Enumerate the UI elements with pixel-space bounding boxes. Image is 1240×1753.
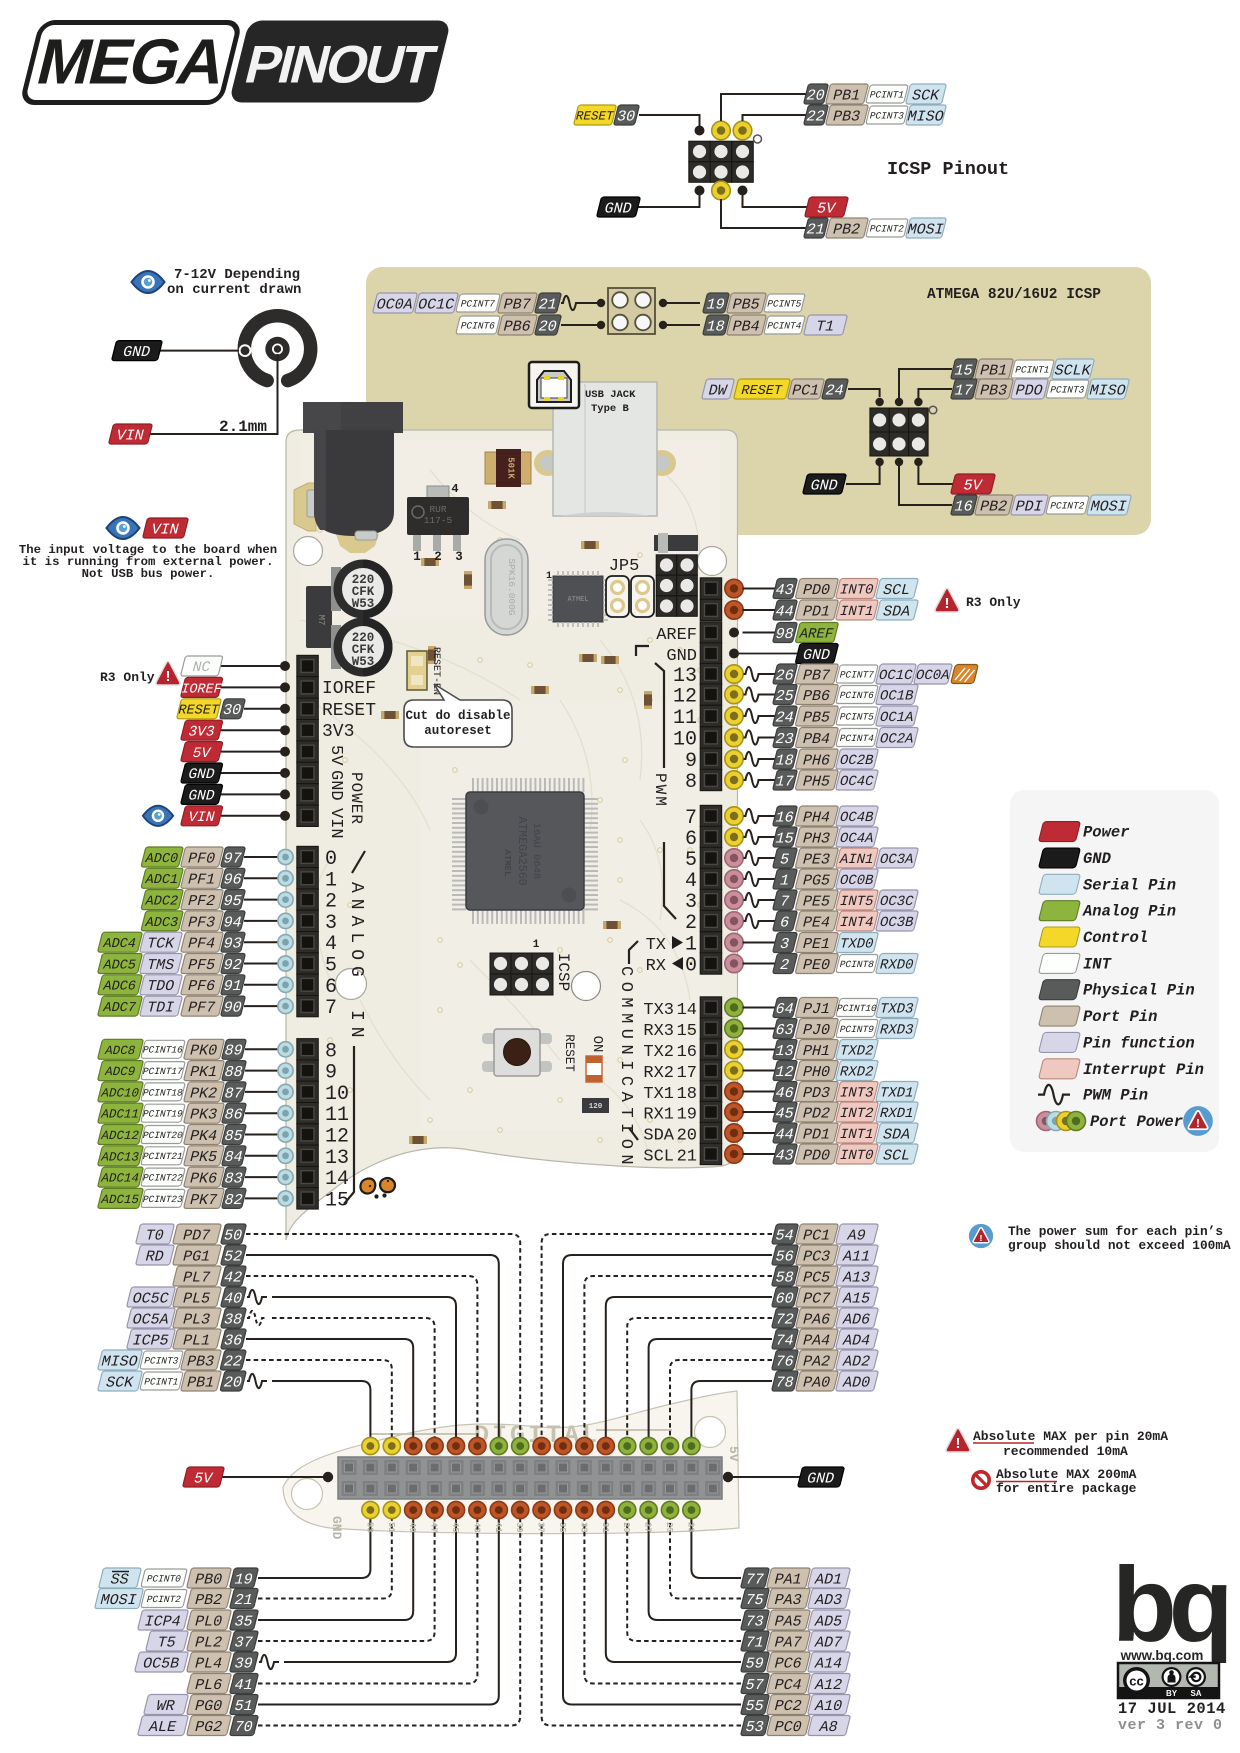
svg-text:PL4: PL4: [193, 1655, 224, 1673]
svg-text:37: 37: [536, 1522, 546, 1533]
svg-text:RXD1: RXD1: [878, 1106, 916, 1122]
svg-text:PL6: PL6: [193, 1676, 224, 1694]
svg-text:PA0: PA0: [801, 1374, 832, 1392]
svg-text:GND: GND: [1083, 850, 1112, 868]
svg-text:PCINT22: PCINT22: [142, 1173, 185, 1184]
svg-text:MISO: MISO: [905, 108, 945, 126]
svg-text:PK1: PK1: [188, 1063, 219, 1081]
svg-text:www.bq.com: www.bq.com: [1120, 1648, 1204, 1663]
svg-text:SCK: SCK: [104, 1374, 136, 1392]
svg-text:29: 29: [621, 1522, 631, 1533]
svg-text:Physical Pin: Physical Pin: [1083, 982, 1195, 1000]
svg-text:20: 20: [677, 1127, 697, 1146]
svg-text:RXD0: RXD0: [878, 958, 916, 974]
svg-text:PG1: PG1: [181, 1248, 212, 1266]
svg-text:49: 49: [407, 1522, 417, 1533]
svg-text:AREF: AREF: [798, 627, 836, 643]
svg-text:PF3: PF3: [186, 913, 217, 931]
svg-text:PF5: PF5: [186, 956, 217, 974]
svg-text:W53: W53: [352, 597, 375, 611]
svg-text:PA2: PA2: [801, 1353, 832, 1371]
svg-text:OC0B: OC0B: [838, 873, 876, 889]
svg-text:A14: A14: [813, 1655, 844, 1673]
svg-text:PG0: PG0: [193, 1697, 224, 1715]
svg-text:PK4: PK4: [188, 1127, 219, 1145]
svg-text:PF6: PF6: [186, 977, 217, 995]
svg-text:PCINT2: PCINT2: [1049, 501, 1086, 512]
svg-text:PC3: PC3: [801, 1248, 832, 1266]
svg-text:PCINT1: PCINT1: [868, 90, 905, 101]
svg-text:ANALOG: ANALOG: [346, 882, 366, 983]
svg-text:0: 0: [325, 848, 337, 871]
svg-text:14: 14: [677, 1001, 697, 1020]
svg-text:Absolute MAX 200mA: Absolute MAX 200mA: [996, 1467, 1137, 1482]
svg-text:PB2: PB2: [193, 1591, 224, 1609]
svg-text:PD7: PD7: [181, 1227, 212, 1245]
svg-text:OC2B: OC2B: [838, 753, 876, 769]
svg-text:TDO: TDO: [145, 977, 176, 995]
svg-text:INT1: INT1: [838, 1127, 876, 1143]
svg-text:COMMUNICATION: COMMUNICATION: [616, 966, 635, 1170]
svg-text:PCINT7: PCINT7: [838, 670, 875, 681]
svg-text:ADC9: ADC9: [103, 1064, 137, 1079]
svg-text:OC0A: OC0A: [914, 668, 952, 684]
svg-text:PC0: PC0: [772, 1718, 803, 1736]
svg-text:PCINT5: PCINT5: [766, 299, 803, 310]
svg-text:Serial Pin: Serial Pin: [1083, 876, 1176, 894]
svg-text:AD1: AD1: [813, 1571, 844, 1589]
svg-text:PCINT2: PCINT2: [145, 1594, 182, 1605]
svg-text:ON: ON: [589, 1036, 605, 1053]
svg-text:GND: GND: [666, 647, 697, 666]
svg-text:VIN: VIN: [326, 808, 345, 839]
svg-text:A12: A12: [813, 1676, 844, 1694]
svg-text:PCINT4: PCINT4: [838, 733, 875, 744]
svg-text:ADC4: ADC4: [101, 937, 137, 952]
svg-text:OC1C: OC1C: [877, 668, 915, 684]
svg-text:PF0: PF0: [186, 850, 217, 868]
svg-text:Type B: Type B: [591, 403, 630, 415]
svg-text:MISO: MISO: [99, 1353, 139, 1371]
svg-text:AIN1: AIN1: [838, 852, 876, 868]
svg-text:AD2: AD2: [841, 1353, 872, 1371]
svg-text:12: 12: [673, 686, 697, 709]
svg-text:PA4: PA4: [801, 1332, 832, 1350]
svg-text:ADC10: ADC10: [100, 1086, 141, 1101]
svg-text:31: 31: [600, 1522, 610, 1533]
svg-text:OC5C: OC5C: [130, 1290, 170, 1308]
svg-text:16: 16: [677, 1043, 697, 1062]
svg-text:PCINT3: PCINT3: [143, 1356, 180, 1367]
svg-text:3V3: 3V3: [186, 725, 216, 741]
svg-text:PB1: PB1: [831, 87, 862, 105]
svg-text:TCK: TCK: [145, 935, 177, 953]
svg-text:PB4: PB4: [801, 730, 832, 748]
svg-text:R3 Only: R3 Only: [966, 595, 1021, 610]
svg-text:ADC13: ADC13: [100, 1149, 141, 1164]
svg-text:PE3: PE3: [801, 851, 832, 869]
svg-text:RUR: RUR: [429, 504, 446, 515]
svg-text:ADC3: ADC3: [144, 916, 180, 931]
svg-text:A13: A13: [841, 1269, 872, 1287]
svg-text:PCINT1: PCINT1: [143, 1377, 180, 1388]
svg-text:ATMEL: ATMEL: [502, 849, 512, 876]
svg-text:PE4: PE4: [801, 914, 832, 932]
svg-text:USB JACK: USB JACK: [585, 389, 636, 401]
svg-text:ICSP: ICSP: [554, 953, 572, 991]
svg-text:ver 3 rev 0: ver 3 rev 0: [1118, 1717, 1223, 1734]
svg-text:IOREF: IOREF: [179, 682, 223, 697]
svg-text:39: 39: [514, 1522, 524, 1533]
svg-text:group should not exceed 100mA: group should not exceed 100mA: [1008, 1238, 1231, 1253]
svg-text:PF2: PF2: [186, 892, 217, 910]
svg-text:TMS: TMS: [145, 956, 176, 974]
svg-text:PL0: PL0: [193, 1613, 224, 1631]
svg-text:GND: GND: [326, 770, 345, 801]
svg-text:PCINT1: PCINT1: [1014, 365, 1051, 376]
svg-text:!: !: [942, 596, 951, 613]
svg-text:POWER: POWER: [347, 772, 365, 825]
svg-text:25: 25: [664, 1522, 674, 1533]
svg-text:10: 10: [325, 1083, 349, 1106]
svg-text:TDI: TDI: [145, 999, 176, 1017]
svg-text:INT4: INT4: [838, 915, 876, 931]
svg-text:PCINT23: PCINT23: [142, 1194, 185, 1205]
svg-text:2: 2: [434, 550, 442, 564]
svg-text:1: 1: [533, 939, 540, 951]
svg-text:PB1: PB1: [185, 1374, 216, 1392]
svg-text:TX: TX: [646, 936, 666, 955]
svg-text:GND: GND: [329, 1516, 344, 1540]
svg-text:AD4: AD4: [841, 1332, 872, 1350]
svg-text:4: 4: [685, 870, 697, 893]
svg-text:PL1: PL1: [181, 1332, 212, 1350]
svg-text:!: !: [953, 1436, 962, 1453]
svg-text:2: 2: [685, 912, 697, 935]
svg-text:16AU 0648: 16AU 0648: [530, 823, 542, 880]
svg-text:PG2: PG2: [193, 1718, 224, 1736]
svg-text:3: 3: [685, 891, 697, 914]
svg-text:PB1: PB1: [978, 362, 1009, 380]
svg-text:VIN: VIN: [149, 521, 180, 539]
svg-text:Absolute MAX per pin 20mA: Absolute MAX per pin 20mA: [973, 1429, 1168, 1444]
svg-text:AD3: AD3: [813, 1591, 844, 1609]
svg-text:AD6: AD6: [841, 1311, 872, 1329]
svg-text:7-12V Depending: 7-12V Depending: [174, 267, 300, 283]
svg-text:A10: A10: [813, 1697, 844, 1715]
svg-text:PCINT6: PCINT6: [459, 321, 496, 332]
svg-text:PC1: PC1: [801, 1227, 832, 1245]
svg-text:SDA: SDA: [643, 1127, 674, 1146]
svg-text:ADC7: ADC7: [101, 1001, 137, 1016]
svg-text:PD2: PD2: [801, 1105, 832, 1123]
svg-text:4: 4: [325, 933, 337, 956]
svg-text:PJ1: PJ1: [801, 1000, 832, 1018]
svg-text:AD5: AD5: [813, 1613, 844, 1631]
svg-text:35: 35: [557, 1522, 567, 1533]
svg-text:OC2A: OC2A: [878, 732, 916, 748]
svg-text:OC5B: OC5B: [141, 1655, 181, 1673]
svg-text:53: 53: [364, 1522, 374, 1533]
svg-text:ADC8: ADC8: [103, 1043, 137, 1058]
svg-text:PK0: PK0: [188, 1042, 219, 1060]
svg-text:18: 18: [677, 1085, 697, 1104]
svg-text:PA1: PA1: [772, 1571, 803, 1589]
svg-text:PJ0: PJ0: [801, 1021, 832, 1039]
svg-text:3V3: 3V3: [322, 722, 354, 742]
svg-text:PD1: PD1: [801, 1126, 832, 1144]
svg-text:PE0: PE0: [801, 956, 832, 974]
svg-text:1: 1: [413, 550, 421, 564]
svg-text:PB5: PB5: [801, 709, 832, 727]
svg-text:PC4: PC4: [772, 1676, 803, 1694]
svg-text:PINOUT: PINOUT: [239, 35, 442, 94]
svg-text:6: 6: [685, 828, 697, 851]
svg-text:5: 5: [685, 849, 697, 872]
svg-text:SA: SA: [1190, 1689, 1201, 1698]
svg-text:PDO: PDO: [1013, 382, 1044, 400]
svg-text:A15: A15: [841, 1290, 872, 1308]
svg-text:VIN: VIN: [186, 810, 216, 826]
svg-text:PC2: PC2: [772, 1697, 803, 1715]
svg-text:INT0: INT0: [838, 583, 876, 599]
svg-text:TX3: TX3: [643, 1001, 674, 1020]
svg-text:PCINT10: PCINT10: [836, 1003, 879, 1014]
svg-text:PCINT4: PCINT4: [766, 321, 803, 332]
svg-text:PK3: PK3: [188, 1106, 219, 1124]
svg-text:Port Pin: Port Pin: [1083, 1008, 1157, 1026]
svg-text:INT1: INT1: [838, 604, 876, 620]
svg-text:PCINT17: PCINT17: [142, 1066, 185, 1077]
svg-text:PWM: PWM: [651, 773, 669, 808]
svg-text:SPK16.000G: SPK16.000G: [506, 558, 517, 615]
svg-text:PA5: PA5: [772, 1613, 803, 1631]
svg-text:PB3: PB3: [185, 1353, 216, 1371]
svg-text:TXD1: TXD1: [878, 1086, 916, 1102]
svg-text:PF4: PF4: [186, 935, 217, 953]
svg-text:11: 11: [325, 1104, 349, 1127]
svg-text:Pin function: Pin function: [1083, 1034, 1195, 1052]
svg-text:5: 5: [325, 955, 337, 978]
svg-text:SCL: SCL: [881, 581, 912, 599]
svg-text:3: 3: [325, 912, 337, 935]
svg-text:21: 21: [677, 1148, 697, 1167]
svg-text:MEGA: MEGA: [30, 25, 233, 97]
svg-text:INT0: INT0: [838, 1148, 876, 1164]
svg-text:PD0: PD0: [801, 581, 832, 599]
svg-text:PC6: PC6: [772, 1655, 803, 1673]
svg-text:PB2: PB2: [831, 221, 862, 239]
svg-text:PB3: PB3: [831, 108, 862, 126]
svg-text:ADC14: ADC14: [100, 1171, 141, 1186]
svg-text:ADC11: ADC11: [100, 1107, 141, 1122]
svg-text:RESET: RESET: [574, 109, 616, 124]
svg-text:MOSI: MOSI: [905, 221, 945, 239]
svg-text:PB2: PB2: [978, 498, 1009, 516]
svg-text:PD0: PD0: [801, 1147, 832, 1165]
svg-text:W53: W53: [352, 655, 375, 669]
svg-text:MOSI: MOSI: [1088, 498, 1128, 516]
svg-text:INT: INT: [1083, 955, 1113, 973]
svg-text:3: 3: [455, 550, 463, 564]
svg-text:8: 8: [685, 771, 697, 794]
svg-text:PCINT9: PCINT9: [838, 1024, 875, 1035]
svg-text:2: 2: [325, 891, 337, 914]
svg-text:PC5: PC5: [801, 1269, 832, 1287]
svg-text:PCINT5: PCINT5: [838, 712, 875, 723]
svg-text:OC4A: OC4A: [838, 831, 876, 847]
svg-text:TXD3: TXD3: [878, 1002, 916, 1018]
svg-text:7: 7: [685, 807, 697, 830]
svg-text:RESET: RESET: [322, 701, 376, 721]
svg-text:SCK: SCK: [910, 87, 942, 105]
svg-text:MISO: MISO: [1087, 382, 1127, 400]
svg-text:TXD2: TXD2: [838, 1044, 876, 1060]
svg-text:on current drawn: on current drawn: [167, 282, 301, 298]
svg-text:47: 47: [429, 1522, 439, 1533]
svg-text:PCINT6: PCINT6: [838, 690, 875, 701]
svg-text:12: 12: [325, 1126, 349, 1149]
svg-text:OC3B: OC3B: [878, 915, 916, 931]
svg-text:ATMEL: ATMEL: [567, 596, 588, 604]
svg-text:MOSI: MOSI: [98, 1591, 138, 1609]
svg-text:ICP4: ICP4: [142, 1613, 182, 1631]
svg-text:ICP5: ICP5: [130, 1332, 170, 1350]
svg-text:13: 13: [325, 1147, 349, 1170]
svg-text:TXD0: TXD0: [838, 937, 876, 953]
svg-text:PB7: PB7: [501, 296, 532, 314]
svg-text:JP5: JP5: [609, 557, 640, 576]
svg-text:PCINT0: PCINT0: [145, 1574, 182, 1585]
svg-text:SDA: SDA: [881, 603, 913, 621]
svg-text:PCINT19: PCINT19: [142, 1109, 185, 1120]
svg-text:PB4: PB4: [730, 318, 761, 336]
svg-text:9: 9: [685, 750, 697, 773]
svg-text:PB6: PB6: [801, 687, 832, 705]
svg-text:AD7: AD7: [813, 1634, 844, 1652]
svg-text:!: !: [978, 1233, 984, 1244]
svg-text:RXD2: RXD2: [838, 1065, 876, 1081]
svg-text:PG5: PG5: [801, 872, 832, 890]
svg-text:7: 7: [325, 997, 337, 1020]
svg-text:23: 23: [685, 1522, 695, 1533]
svg-text:SDA: SDA: [881, 1126, 913, 1144]
svg-text:R3 Only: R3 Only: [100, 670, 155, 685]
svg-text:INT3: INT3: [838, 1086, 876, 1102]
svg-text:SCL: SCL: [643, 1148, 674, 1167]
svg-text:ATMEGA2560: ATMEGA2560: [515, 816, 528, 885]
svg-text:19: 19: [677, 1106, 697, 1125]
svg-text:GND: GND: [805, 1470, 836, 1488]
svg-text:bq: bq: [1112, 1546, 1227, 1664]
svg-text:OC3C: OC3C: [878, 894, 916, 910]
svg-text:Interrupt Pin: Interrupt Pin: [1083, 1061, 1204, 1079]
svg-text:AD0: AD0: [841, 1374, 872, 1392]
svg-text:1: 1: [546, 571, 552, 582]
svg-text:RX1: RX1: [643, 1106, 674, 1125]
svg-text:PD1: PD1: [801, 603, 832, 621]
svg-text:PL7: PL7: [181, 1269, 212, 1287]
svg-text:ATMEGA 82U/16U2 ICSP: ATMEGA 82U/16U2 ICSP: [927, 287, 1101, 303]
svg-text:GND: GND: [121, 343, 152, 361]
svg-text:Analog Pin: Analog Pin: [1082, 903, 1176, 921]
svg-text:PD3: PD3: [801, 1084, 832, 1102]
svg-text:PB7: PB7: [801, 667, 832, 685]
svg-text:RX3: RX3: [643, 1022, 674, 1041]
svg-text:INT2: INT2: [838, 1106, 876, 1122]
svg-text:PA7: PA7: [772, 1634, 803, 1652]
svg-text:Control: Control: [1083, 929, 1148, 947]
svg-text:PL3: PL3: [181, 1311, 212, 1329]
svg-text:51: 51: [386, 1522, 396, 1533]
svg-text:PCINT2: PCINT2: [868, 224, 905, 235]
svg-text:5V: 5V: [326, 745, 345, 766]
svg-text:PA6: PA6: [801, 1311, 832, 1329]
svg-text:M7: M7: [316, 615, 326, 626]
svg-text:41: 41: [493, 1522, 503, 1533]
svg-text:OC1B: OC1B: [878, 689, 916, 705]
svg-text:GND: GND: [801, 646, 832, 664]
svg-text:PK2: PK2: [188, 1084, 219, 1102]
svg-text:PCINT8: PCINT8: [838, 959, 875, 970]
svg-text:TX2: TX2: [643, 1043, 674, 1062]
svg-text:ALE: ALE: [147, 1718, 178, 1736]
svg-text:ADC0: ADC0: [144, 852, 180, 867]
svg-text:Not USB bus power.: Not USB bus power.: [82, 567, 215, 581]
svg-text:PCINT20: PCINT20: [142, 1130, 185, 1141]
svg-text:A11: A11: [841, 1248, 872, 1266]
svg-text:OC3A: OC3A: [878, 852, 916, 868]
svg-text:PH6: PH6: [801, 752, 832, 770]
svg-text:cc: cc: [1129, 1674, 1143, 1689]
svg-text:1: 1: [685, 934, 697, 957]
svg-text:The power sum for each pin’s: The power sum for each pin’s: [1008, 1224, 1223, 1239]
svg-text:PF1: PF1: [186, 871, 217, 889]
svg-text:for entire package: for entire package: [996, 1481, 1137, 1496]
svg-text:RESET: RESET: [176, 704, 220, 719]
svg-text:PE1: PE1: [801, 935, 832, 953]
svg-text:PH5: PH5: [801, 773, 832, 791]
svg-text:RX2: RX2: [643, 1064, 674, 1083]
svg-text:17 JUL 2014: 17 JUL 2014: [1118, 1700, 1226, 1718]
svg-text:OC1C: OC1C: [416, 296, 456, 314]
svg-text:17: 17: [677, 1064, 697, 1083]
svg-text:!: !: [163, 669, 172, 686]
svg-text:GND: GND: [186, 767, 216, 783]
svg-text:ADC2: ADC2: [144, 895, 180, 910]
svg-text:Cut do disable: Cut do disable: [405, 709, 510, 723]
svg-text:recommended 10mA: recommended 10mA: [1003, 1444, 1128, 1459]
svg-text:8: 8: [325, 1040, 337, 1063]
svg-text:OC1A: OC1A: [878, 710, 916, 726]
svg-text:IOREF: IOREF: [322, 679, 376, 699]
svg-text:1: 1: [325, 869, 337, 892]
svg-text:45: 45: [450, 1522, 460, 1533]
svg-text:GND: GND: [186, 789, 216, 805]
svg-text:GND: GND: [602, 200, 633, 218]
svg-text:15: 15: [677, 1022, 697, 1041]
svg-text:PH3: PH3: [801, 830, 832, 848]
svg-text:PB6: PB6: [501, 318, 532, 336]
svg-text:PCINT16: PCINT16: [142, 1045, 185, 1056]
svg-text:OC5A: OC5A: [130, 1311, 171, 1329]
svg-text:10: 10: [673, 729, 697, 752]
svg-text:43: 43: [471, 1522, 481, 1533]
svg-text:PDI: PDI: [1013, 498, 1044, 516]
svg-text:GND: GND: [808, 477, 839, 495]
svg-text:11: 11: [673, 707, 697, 730]
svg-text:120: 120: [589, 1103, 603, 1111]
